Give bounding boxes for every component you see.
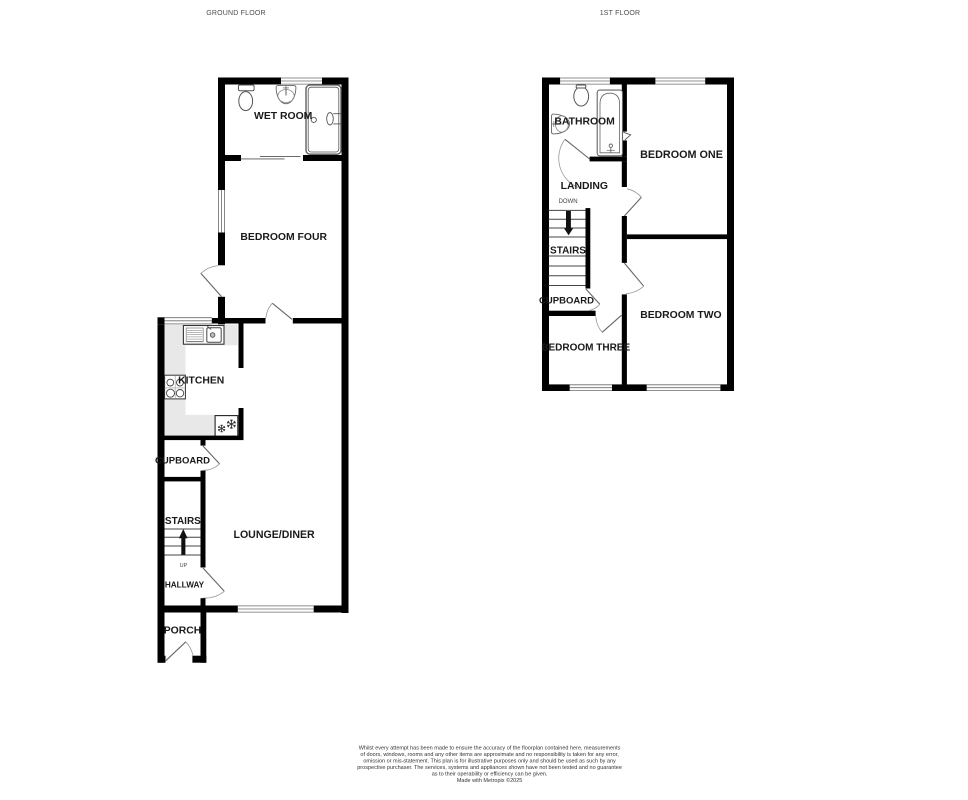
svg-text:LANDING: LANDING [561,181,608,192]
svg-text:CUPBOARD: CUPBOARD [539,296,594,307]
svg-text:BEDROOM TWO: BEDROOM TWO [640,310,721,321]
svg-text:omission or mis-statement. Thi: omission or mis-statement. This plan is … [363,758,616,764]
svg-text:STAIRS: STAIRS [165,516,201,527]
svg-text:STAIRS: STAIRS [550,245,586,256]
svg-text:LOUNGE/DINER: LOUNGE/DINER [233,529,315,541]
svg-text:CUPBOARD: CUPBOARD [155,456,210,467]
svg-text:1ST FLOOR: 1ST FLOOR [600,10,641,17]
svg-text:of doors, windows, rooms and a: of doors, windows, rooms and any other i… [360,752,619,758]
svg-text:UP: UP [180,563,188,569]
svg-text:prospective purchaser. The ser: prospective purchaser. The services, sys… [357,765,622,771]
svg-text:Whilst every attempt has been: Whilst every attempt has been made to en… [359,745,621,751]
svg-text:Made with Metropix ©2025: Made with Metropix ©2025 [457,777,523,784]
svg-text:DOWN: DOWN [559,199,578,205]
svg-text:BEDROOM FOUR: BEDROOM FOUR [240,232,327,243]
svg-text:BEDROOM THREE: BEDROOM THREE [541,343,630,354]
svg-text:KITCHEN: KITCHEN [178,376,224,387]
svg-text:BEDROOM ONE: BEDROOM ONE [640,149,723,161]
svg-text:WET ROOM: WET ROOM [254,111,312,122]
svg-text:GROUND FLOOR: GROUND FLOOR [206,10,266,17]
svg-text:as to their operability or eff: as to their operability or efficiency ca… [432,771,548,777]
svg-text:BATHROOM: BATHROOM [554,116,614,127]
svg-text:HALLWAY: HALLWAY [165,581,205,590]
svg-text:PORCH: PORCH [164,625,202,636]
